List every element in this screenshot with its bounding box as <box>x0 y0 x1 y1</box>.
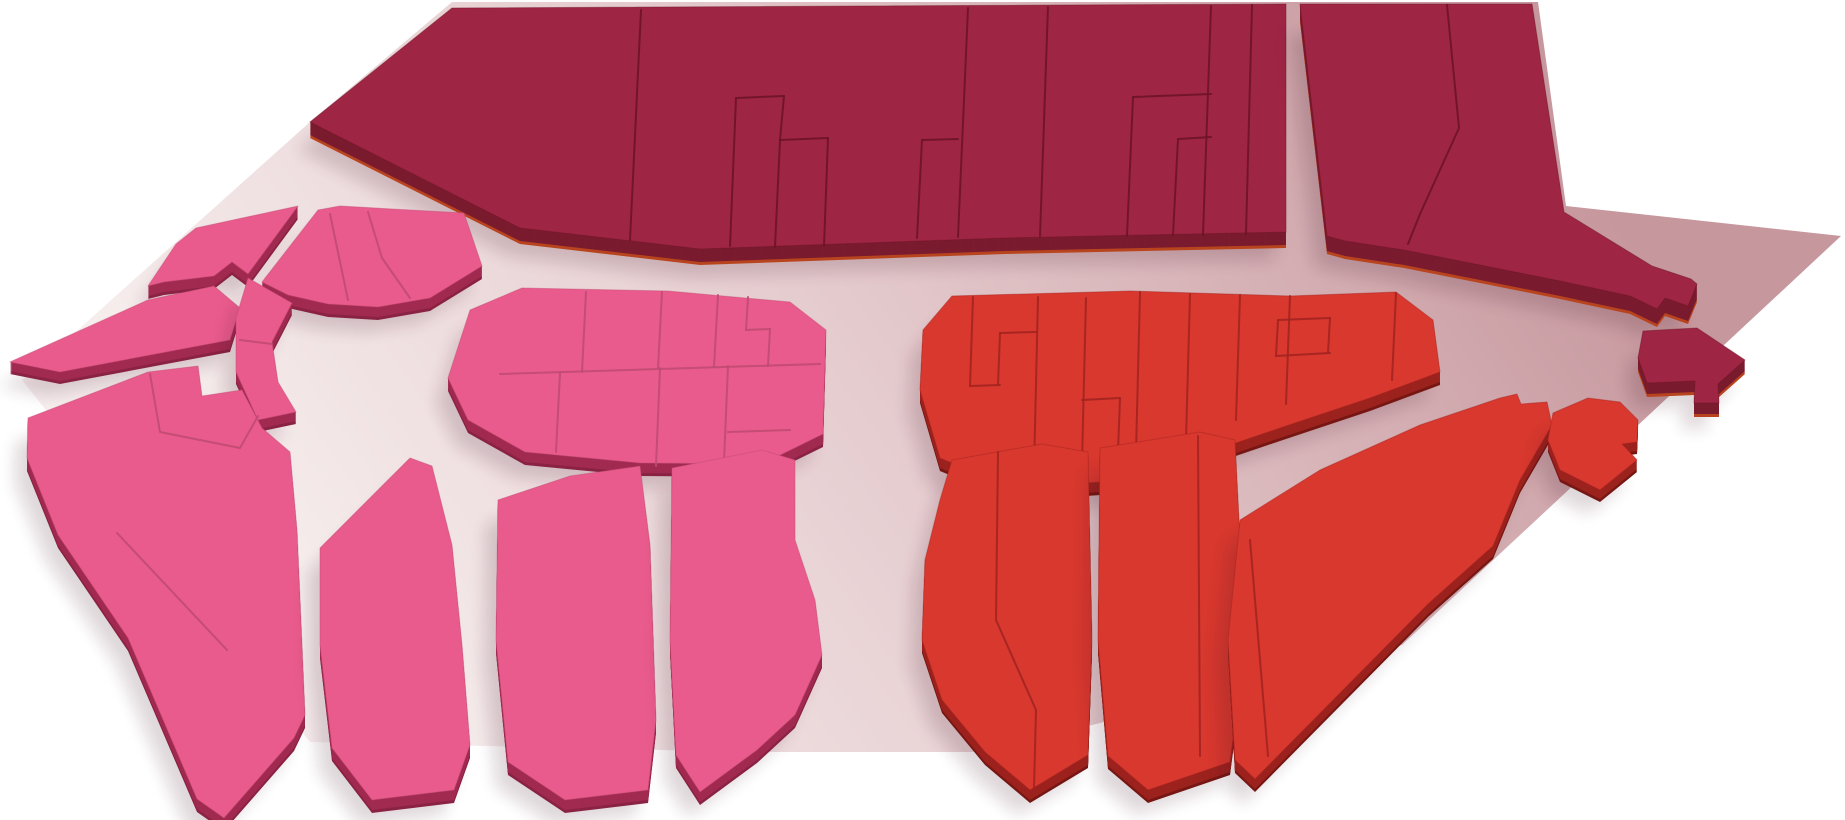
south-twin-left-block-top[interactable] <box>496 466 656 800</box>
center-west-island-top[interactable] <box>448 288 826 464</box>
south-red-right-block[interactable] <box>1086 432 1240 815</box>
south-twin-left-block[interactable] <box>484 466 656 820</box>
center-west-island-parcel-line-6 <box>746 329 770 330</box>
center-east-island-parcel-line-4 <box>1000 332 1036 333</box>
south-red-right-block-top[interactable] <box>1098 432 1240 790</box>
north-terrace-band-parcel-line-10 <box>922 139 958 140</box>
center-east-island-parcel-line-2 <box>970 385 1000 386</box>
district-map-canvas <box>0 0 1845 820</box>
west-slab-block[interactable] <box>15 366 305 820</box>
map-viewport <box>0 0 1845 820</box>
south-red-left-block[interactable] <box>910 444 1092 815</box>
